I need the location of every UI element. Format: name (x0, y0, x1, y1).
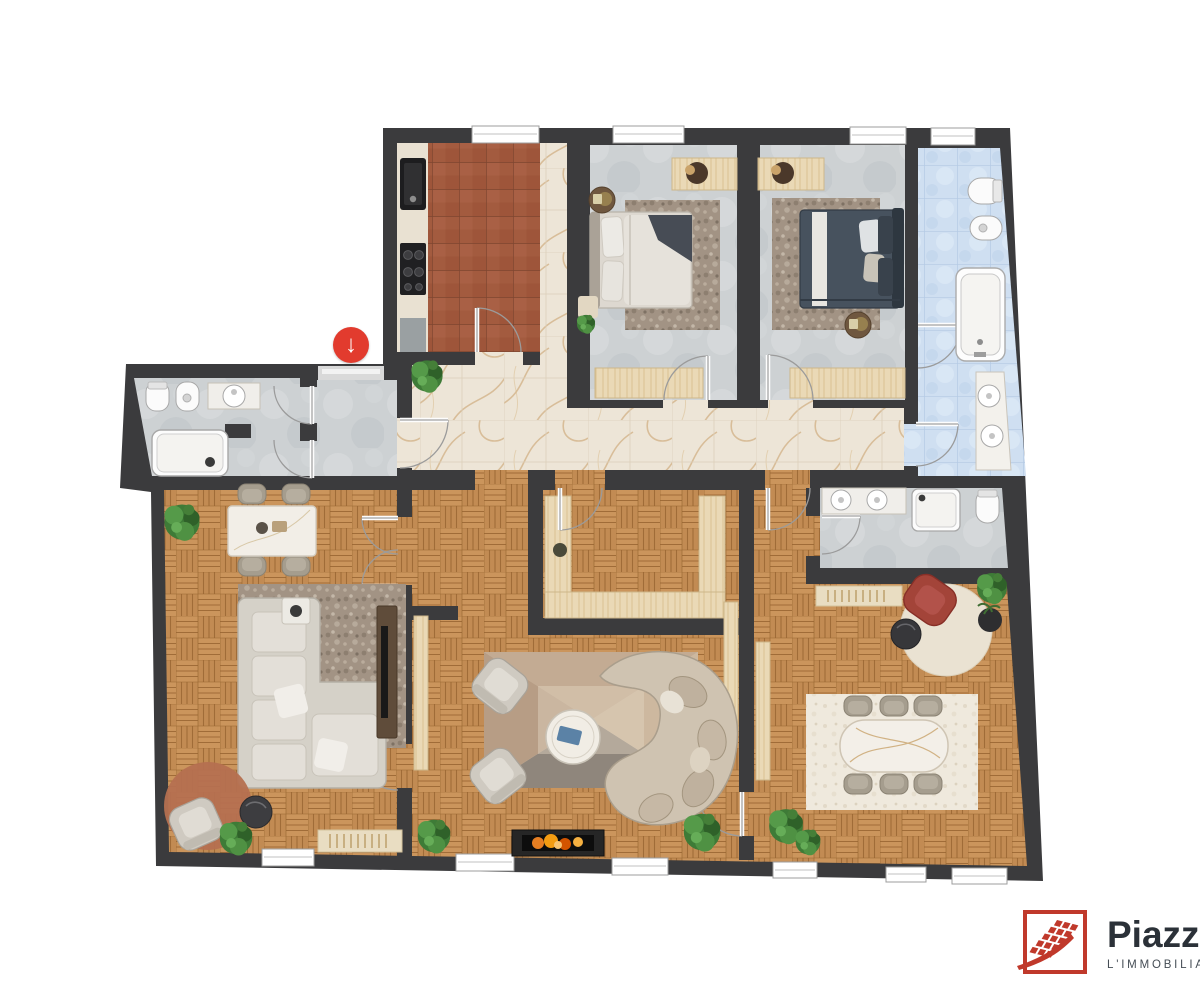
bathtub (956, 268, 1005, 361)
floor-plan-svg (0, 0, 1200, 1000)
radiator-bench (816, 586, 902, 606)
brand-name: Piazza (1107, 916, 1200, 953)
lounge-side-bench (414, 616, 428, 770)
entrance-arrow-icon: ↓ (333, 327, 369, 363)
washbasin (223, 385, 245, 407)
closet-right-unit (699, 496, 725, 592)
window (931, 128, 975, 145)
shower-tray (912, 489, 960, 531)
closet-bottom-unit (545, 592, 725, 618)
kitchen-marble-strip (540, 143, 567, 365)
coffee-table (546, 710, 600, 764)
window (773, 862, 817, 878)
shower-tray (152, 430, 228, 476)
window (262, 849, 314, 866)
bedroom2-runner (812, 212, 827, 306)
window (612, 858, 668, 875)
radiator-bench (318, 830, 402, 852)
brand-tagline: L'IMMOBILIARE (1107, 959, 1200, 971)
fireplace (512, 830, 604, 856)
bedroom1-stool (578, 296, 598, 318)
brand-logo: Piazza L'IMMOBILIARE (1023, 910, 1200, 974)
kitchen-faucet (410, 196, 416, 202)
bedroom2-side-table (845, 312, 871, 338)
entry-hall-floor (317, 380, 397, 476)
bedroom1-side-table (589, 187, 615, 213)
tv-screen (381, 626, 388, 718)
corridor-floor (567, 408, 904, 470)
dining-table-set (840, 696, 948, 794)
brand-logo-icon (1023, 910, 1087, 974)
entrance-arrow-glyph: ↓ (345, 331, 357, 359)
window (850, 127, 906, 144)
dining-side-bench (756, 642, 770, 780)
bedroom1-wardrobe (595, 368, 703, 398)
window (952, 868, 1007, 884)
window (472, 126, 539, 143)
window (886, 867, 926, 882)
bedroom1-bed (590, 212, 692, 308)
closet-decor (553, 543, 567, 557)
floor-plan-canvas: ↓ Piazza L'IMMOBILIARE (0, 0, 1200, 1000)
kitchen-cabinet (400, 318, 426, 352)
bedroom2-bed (800, 208, 904, 308)
room-kitchen (400, 158, 426, 352)
bedroom2-wardrobe (790, 368, 905, 398)
planter-pot (978, 608, 1002, 632)
window (456, 854, 514, 871)
window (613, 126, 684, 143)
throw-pillow (313, 737, 349, 773)
kitchen-floor (428, 143, 540, 352)
